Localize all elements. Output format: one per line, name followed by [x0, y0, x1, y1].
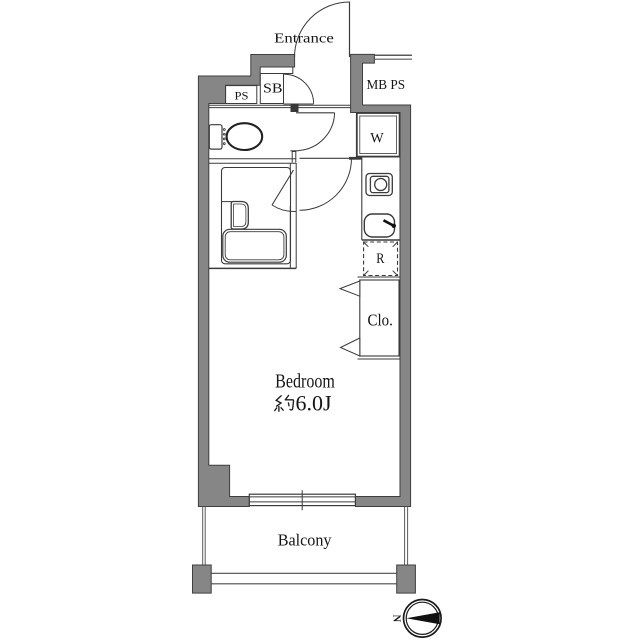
svg-text:Entrance: Entrance [274, 31, 334, 47]
svg-text:6.0J: 6.0J [296, 392, 333, 416]
svg-text:Bedroom: Bedroom [275, 372, 335, 393]
svg-text:N: N [391, 615, 402, 623]
svg-text:PS: PS [235, 88, 249, 102]
svg-text:R: R [376, 251, 384, 267]
svg-text:Balcony: Balcony [278, 530, 332, 549]
svg-text:SB: SB [263, 80, 283, 95]
svg-text:W: W [370, 130, 384, 146]
svg-text:Clo.: Clo. [368, 311, 393, 330]
svg-text:MB PS: MB PS [367, 77, 406, 92]
